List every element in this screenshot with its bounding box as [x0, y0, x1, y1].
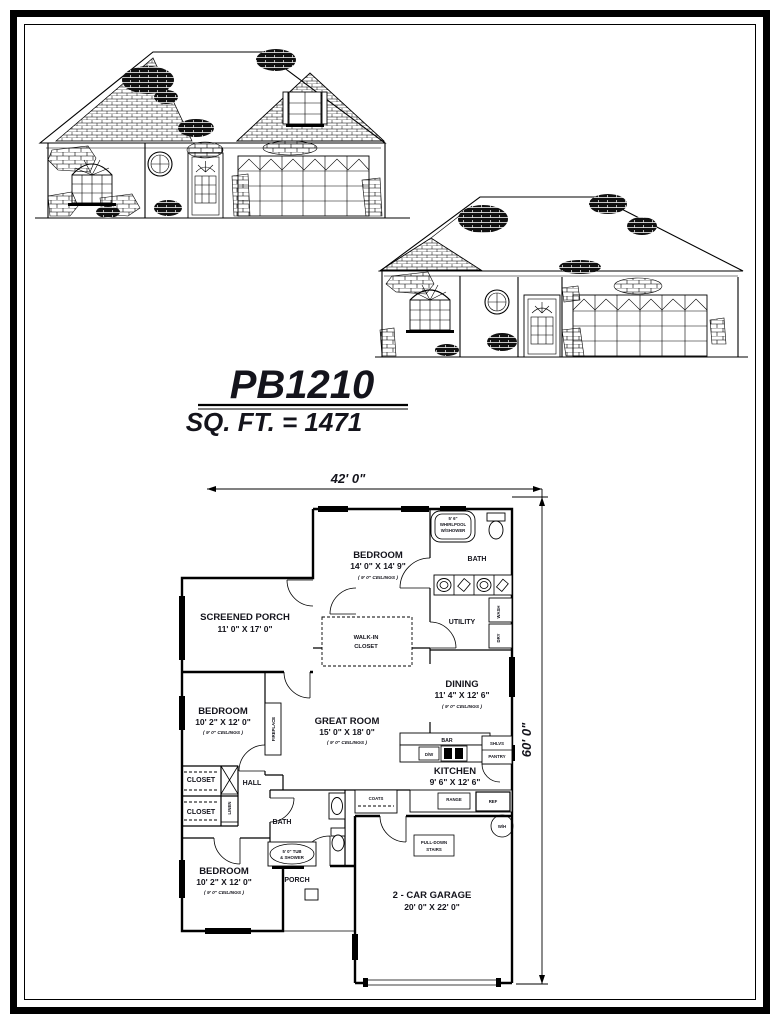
- rear-elevation: [375, 194, 748, 357]
- screened-porch-size: 11' 0" X 17' 0": [217, 624, 272, 634]
- bedroom-2-ceiling: ( 9' 0" CEILINGS ): [203, 730, 243, 736]
- room-bedroom-3: BEDROOM 10' 2" X 12' 0" ( 9' 0" CEILINGS…: [196, 866, 252, 896]
- hall-label: HALL: [243, 780, 262, 787]
- bedroom-3-size: 10' 2" X 12' 0": [196, 877, 252, 887]
- coats-label: COATS: [369, 796, 384, 801]
- dining-ceiling: ( 9' 0" CEILINGS ): [442, 704, 482, 710]
- bedroom-2-label: BEDROOM: [198, 706, 248, 717]
- room-bedroom-2: BEDROOM 10' 2" X 12' 0" ( 9' 0" CEILINGS…: [195, 706, 251, 736]
- tub-label-2: & SHOWER: [280, 855, 305, 860]
- shelves-label: SHLVS: [490, 741, 504, 746]
- front-elevation: [35, 49, 410, 218]
- great-room-ceiling: ( 9' 0" CEILINGS ): [327, 740, 367, 746]
- closet-1-label: CLOSET: [187, 777, 216, 784]
- fireplace-label: FIREPLACE: [271, 717, 276, 741]
- walk-in-closet-label-1: WALK-IN: [354, 635, 379, 641]
- bar-label: BAR: [441, 738, 452, 744]
- room-screened-porch: SCREENED PORCH 11' 0" X 17' 0": [200, 612, 290, 634]
- square-footage: SQ. FT. = 1471: [186, 407, 363, 437]
- tub-icon: [268, 842, 316, 866]
- room-master-bath: 5' 6" WHIRLPOOL W/SHOWER BATH: [431, 511, 512, 595]
- kitchen-size: 9' 6" X 12' 6": [430, 777, 481, 787]
- plan-number: PB1210: [230, 363, 375, 407]
- floor-plan: 42' 0" 60' 0": [179, 471, 548, 987]
- great-room-label: GREAT ROOM: [315, 716, 380, 727]
- room-walk-in-closet: WALK-IN CLOSET: [322, 617, 412, 666]
- coats-closet: COATS: [355, 790, 397, 813]
- garage-label: 2 - CAR GARAGE: [393, 890, 472, 901]
- refrigerator-label: REF: [489, 799, 498, 804]
- overall-width-dimension: 42' 0": [330, 471, 366, 486]
- plan-sheet-drawing: PB1210 SQ. FT. = 1471 42' 0" 60' 0": [0, 0, 780, 1024]
- room-garage: PULL-DOWN STAIRS W/H 2 - CAR GARAGE 20' …: [393, 815, 513, 912]
- bedroom-3-ceiling: ( 9' 0" CEILINGS ): [204, 890, 244, 896]
- tub-label-1: 5' 0" TUB: [282, 849, 301, 854]
- porch-post: [305, 889, 318, 900]
- dryer-label: DRY: [496, 633, 501, 642]
- door-swings: [214, 558, 500, 866]
- porch-label: PORCH: [284, 877, 309, 884]
- stairs-label-2: STAIRS: [426, 847, 442, 852]
- bedroom-2-size: 10' 2" X 12' 0": [195, 717, 251, 727]
- utility-label: UTILITY: [449, 619, 476, 626]
- master-bedroom-size: 14' 0" X 14' 9": [350, 561, 406, 571]
- great-room-size: 15' 0" X 18' 0": [319, 727, 375, 737]
- room-dining: DINING 11' 4" X 12' 6" ( 9' 0" CEILINGS …: [434, 679, 489, 710]
- stairs-label-1: PULL-DOWN: [421, 840, 447, 845]
- linen-label: LINEN: [227, 802, 232, 815]
- hall-and-closets: CLOSET CLOSET LINEN HALL: [184, 766, 262, 822]
- overall-depth-dimension: 60' 0": [519, 722, 534, 757]
- master-bedroom-ceiling: ( 9' 0" CEILINGS ): [358, 575, 398, 581]
- pull-down-stairs-icon: [414, 835, 454, 856]
- room-porch: PORCH: [284, 877, 318, 900]
- range-label: RANGE: [446, 797, 462, 802]
- kitchen-label: KITCHEN: [434, 766, 476, 777]
- room-great-room: GREAT ROOM 15' 0" X 18' 0" ( 9' 0" CEILI…: [265, 703, 379, 755]
- whirlpool-label: WHIRLPOOL: [440, 522, 467, 527]
- dining-label: DINING: [445, 679, 478, 690]
- toilet-icon: [487, 513, 505, 521]
- room-utility: UTILITY WASH DRY: [449, 598, 512, 648]
- room-master-bedroom: BEDROOM 14' 0" X 14' 9" ( 9' 0" CEILINGS…: [350, 550, 406, 581]
- dimension-lines: 42' 0" 60' 0": [207, 471, 548, 984]
- whirlpool-size: 5' 6": [448, 516, 457, 521]
- master-bedroom-label: BEDROOM: [353, 550, 403, 561]
- water-heater-label: W/H: [498, 824, 506, 829]
- washer-label: WASH: [496, 606, 501, 619]
- pantry-label: PANTRY: [488, 754, 505, 759]
- garage-size: 20' 0" X 22' 0": [404, 902, 460, 912]
- dining-size: 11' 4" X 12' 6": [434, 690, 489, 700]
- walk-in-closet-label-2: CLOSET: [354, 644, 378, 650]
- title-block: PB1210 SQ. FT. = 1471: [186, 363, 408, 437]
- bath-2-label: BATH: [273, 819, 292, 826]
- plan-sheet: PB1210 SQ. FT. = 1471 42' 0" 60' 0": [0, 0, 780, 1024]
- closet-2-label: CLOSET: [187, 809, 216, 816]
- room-bath-2: BATH 5' 0" TUB & SHOWER: [268, 793, 345, 866]
- room-kitchen: BAR D/W SHLVS PANTRY KITCHEN 9' 6" X 12'…: [400, 733, 512, 812]
- screened-porch-label: SCREENED PORCH: [200, 612, 290, 623]
- master-bath-label: BATH: [468, 556, 487, 563]
- bedroom-3-label: BEDROOM: [199, 866, 249, 877]
- dishwasher-label: D/W: [425, 752, 434, 757]
- whirlpool-shower-label: W/SHOWER: [441, 528, 466, 533]
